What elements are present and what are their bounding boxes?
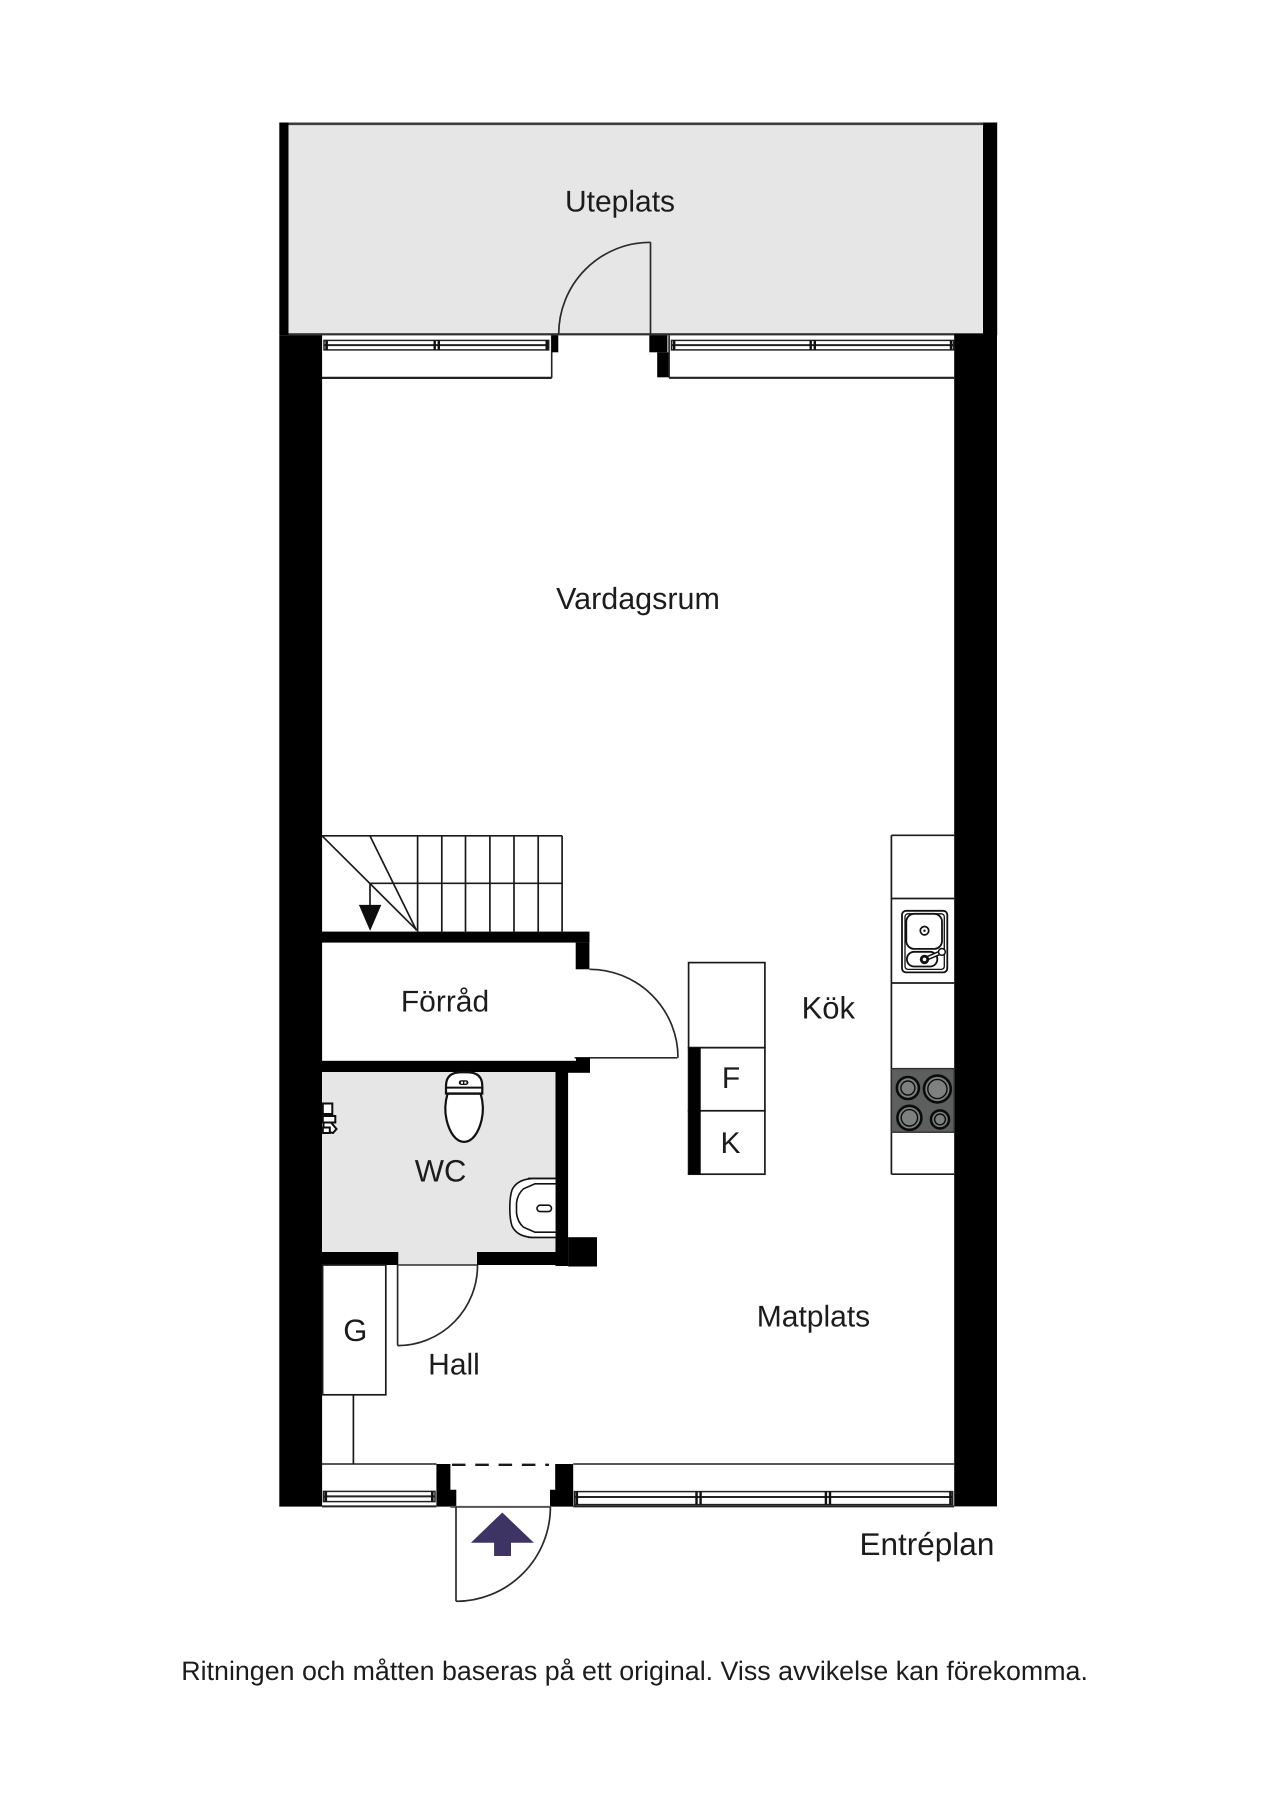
svg-text:Hall: Hall — [428, 1348, 480, 1381]
svg-text:Vardagsrum: Vardagsrum — [556, 582, 720, 616]
svg-text:K: K — [720, 1127, 740, 1160]
svg-text:Matplats: Matplats — [757, 1301, 870, 1334]
svg-text:Förråd: Förråd — [401, 986, 489, 1019]
svg-text:Ritningen och måtten baseras p: Ritningen och måtten baseras på ett orig… — [181, 1656, 1088, 1686]
svg-text:F: F — [722, 1062, 740, 1095]
svg-text:G: G — [343, 1313, 367, 1348]
svg-text:Kök: Kök — [802, 990, 856, 1025]
svg-text:Uteplats: Uteplats — [565, 185, 675, 218]
svg-text:WC: WC — [415, 1154, 467, 1189]
svg-text:Entréplan: Entréplan — [860, 1526, 995, 1562]
